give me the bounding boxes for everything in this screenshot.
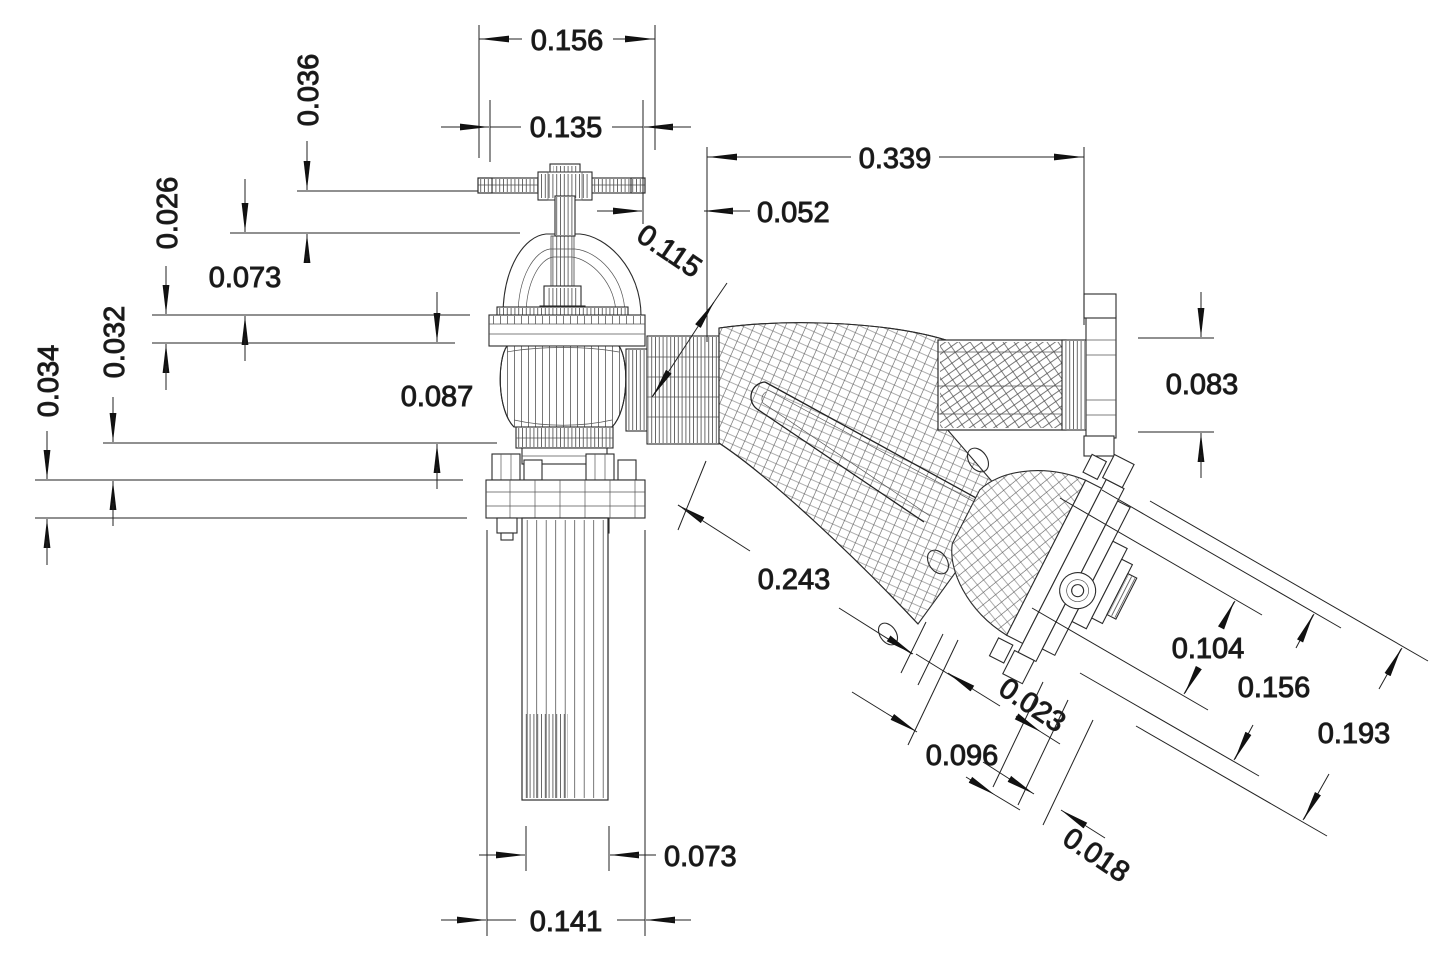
dim-label: 0.034 <box>33 345 65 418</box>
inlet-end-cap <box>1062 294 1116 456</box>
dimension-inlet-od: 0.083 <box>1138 292 1238 478</box>
dim-label: 0.243 <box>758 564 831 596</box>
dimension-tip-step: 0.023 <box>916 654 1071 805</box>
dimension-collar: 0.032 <box>99 306 131 526</box>
valve-wireframe <box>478 164 1182 800</box>
union-nut <box>626 336 719 444</box>
dim-label: 0.052 <box>757 197 830 229</box>
dim-label: 0.135 <box>530 112 603 144</box>
dim-label: 0.073 <box>664 841 737 873</box>
dim-label: 0.026 <box>152 177 184 250</box>
dimension-plate: 0.034 <box>33 345 65 565</box>
dim-label: 0.073 <box>209 262 282 294</box>
stem <box>555 196 575 236</box>
dim-label: 0.193 <box>1318 718 1391 750</box>
body-barrel <box>500 346 626 427</box>
inlet-pipe <box>938 340 1066 430</box>
standpipe <box>522 518 608 800</box>
dimension-bonnet-height: 0.073 <box>209 179 282 361</box>
dim-label: 0.141 <box>530 906 603 938</box>
dim-label: 0.339 <box>859 143 932 175</box>
dimension-stem-offset: 0.052 <box>597 162 830 229</box>
dim-label: 0.096 <box>926 740 999 772</box>
bonnet-flange <box>489 307 645 346</box>
dim-label: 0.087 <box>401 381 474 413</box>
dim-label: 0.036 <box>293 54 325 127</box>
dim-label: 0.083 <box>1166 369 1239 401</box>
dimension-barrel: 0.087 <box>401 292 474 489</box>
dim-label: 0.023 <box>993 672 1071 739</box>
dimension-pipe-od: 0.073 <box>479 826 737 873</box>
dim-label: 0.156 <box>1238 672 1311 704</box>
dimension-flange-ring: 0.026 <box>152 177 184 390</box>
dimension-inlet-length: 0.339 <box>707 143 1084 342</box>
dimension-tip-relief: 0.018 <box>983 720 1135 889</box>
dim-label: 0.032 <box>99 306 131 379</box>
cad-valve-drawing: 0.156 0.135 0.339 0.052 0.115 0.036 <box>0 0 1440 965</box>
dimension-bell-od: 0.193 <box>1136 501 1428 836</box>
dim-label: 0.104 <box>1172 633 1245 665</box>
dimension-handle-height: 0.036 <box>293 54 325 262</box>
dimension-annotations: 0.156 0.135 0.339 0.052 0.115 0.036 <box>33 25 1428 938</box>
handle-wheel <box>478 164 645 200</box>
dim-label: 0.156 <box>531 25 604 57</box>
dim-label: 0.115 <box>631 219 707 285</box>
bonnet <box>503 234 641 316</box>
